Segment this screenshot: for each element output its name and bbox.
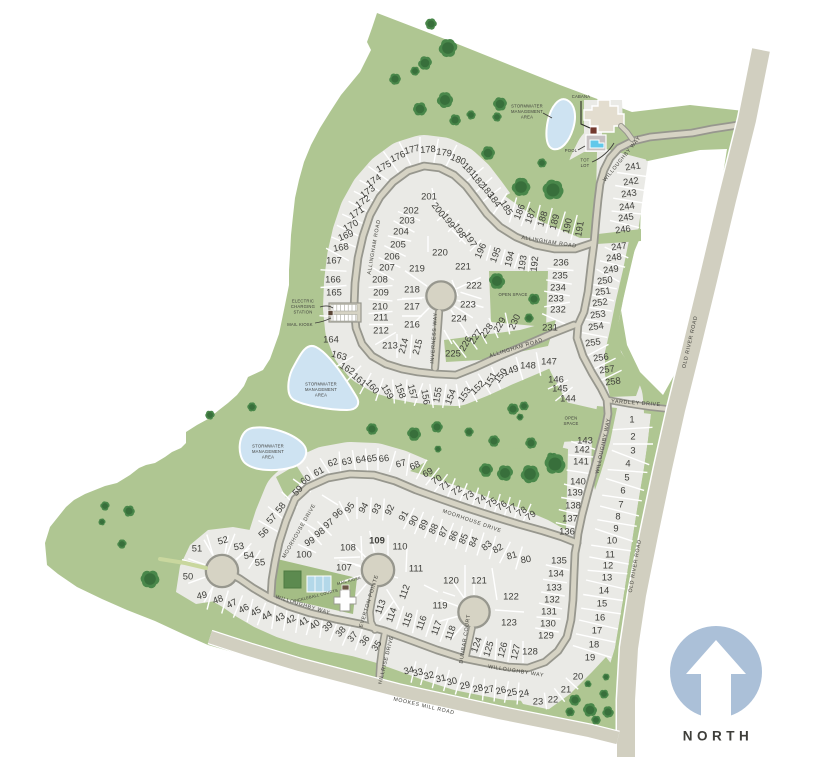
- svg-text:132: 132: [544, 593, 560, 604]
- svg-text:255: 255: [584, 335, 601, 348]
- svg-text:216: 216: [404, 318, 420, 329]
- svg-text:131: 131: [541, 605, 557, 616]
- svg-text:51: 51: [192, 542, 202, 553]
- svg-text:223: 223: [460, 298, 476, 309]
- svg-text:22: 22: [548, 693, 558, 704]
- svg-text:222: 222: [466, 279, 482, 290]
- svg-text:135: 135: [551, 554, 567, 565]
- svg-text:4: 4: [625, 457, 630, 468]
- svg-text:3: 3: [630, 444, 635, 455]
- svg-text:66: 66: [378, 452, 390, 464]
- svg-text:133: 133: [546, 581, 562, 592]
- svg-text:POOL: POOL: [565, 148, 578, 153]
- svg-text:257: 257: [598, 362, 615, 375]
- svg-text:MANAGEMENT: MANAGEMENT: [511, 109, 543, 114]
- svg-text:211: 211: [374, 311, 389, 322]
- svg-text:210: 210: [372, 300, 388, 311]
- svg-text:254: 254: [587, 319, 604, 332]
- svg-text:55: 55: [254, 556, 265, 568]
- svg-text:50: 50: [183, 570, 193, 581]
- svg-text:224: 224: [451, 312, 467, 323]
- svg-text:54: 54: [243, 549, 255, 561]
- svg-text:20: 20: [573, 670, 583, 681]
- svg-text:146: 146: [548, 373, 564, 384]
- svg-text:201: 201: [421, 190, 437, 201]
- svg-text:140: 140: [570, 475, 586, 486]
- svg-text:STORMWATER: STORMWATER: [305, 382, 337, 387]
- svg-text:AREA: AREA: [521, 115, 533, 120]
- svg-text:219: 219: [409, 262, 425, 273]
- svg-text:80: 80: [520, 553, 532, 566]
- svg-text:122: 122: [503, 590, 519, 601]
- svg-text:231: 231: [542, 321, 558, 332]
- svg-text:245: 245: [617, 210, 634, 223]
- svg-text:1: 1: [629, 413, 634, 424]
- svg-text:120: 120: [443, 574, 459, 585]
- svg-text:137: 137: [562, 512, 578, 523]
- svg-text:10: 10: [607, 534, 617, 545]
- svg-text:128: 128: [522, 645, 538, 656]
- svg-text:129: 129: [538, 629, 554, 640]
- svg-text:141: 141: [573, 455, 589, 466]
- svg-text:17: 17: [592, 624, 602, 635]
- svg-text:204: 204: [393, 225, 409, 236]
- svg-text:21: 21: [561, 683, 571, 694]
- svg-text:233: 233: [548, 292, 564, 303]
- svg-text:109: 109: [369, 534, 385, 545]
- svg-text:167: 167: [326, 254, 342, 265]
- svg-text:14: 14: [599, 584, 609, 595]
- svg-text:119: 119: [433, 599, 448, 610]
- svg-text:STORMWATER: STORMWATER: [252, 444, 284, 449]
- svg-text:148: 148: [520, 359, 536, 370]
- svg-text:CHARGING: CHARGING: [291, 304, 315, 309]
- svg-text:TOT: TOT: [581, 157, 590, 162]
- svg-text:209: 209: [373, 286, 389, 297]
- svg-text:MANAGEMENT: MANAGEMENT: [305, 387, 337, 392]
- svg-text:235: 235: [552, 269, 568, 280]
- svg-text:138: 138: [565, 499, 581, 510]
- svg-text:246: 246: [614, 222, 631, 235]
- svg-text:206: 206: [384, 250, 400, 261]
- svg-text:STATION: STATION: [294, 310, 313, 315]
- svg-text:252: 252: [591, 295, 608, 308]
- svg-text:232: 232: [550, 303, 566, 314]
- svg-text:241: 241: [624, 159, 641, 172]
- svg-text:16: 16: [595, 611, 605, 622]
- svg-text:205: 205: [390, 238, 406, 249]
- svg-text:65: 65: [366, 452, 378, 465]
- svg-text:STORMWATER: STORMWATER: [511, 104, 543, 109]
- svg-text:192: 192: [528, 256, 541, 273]
- svg-text:207: 207: [379, 261, 395, 272]
- svg-text:111: 111: [409, 562, 423, 573]
- svg-text:7: 7: [618, 498, 623, 509]
- svg-text:221: 221: [455, 260, 471, 271]
- svg-text:108: 108: [340, 541, 356, 552]
- svg-text:217: 217: [404, 300, 420, 311]
- svg-text:166: 166: [325, 273, 341, 284]
- svg-text:107: 107: [336, 561, 352, 572]
- svg-text:248: 248: [605, 250, 622, 263]
- svg-text:134: 134: [548, 567, 564, 578]
- svg-text:2: 2: [630, 430, 635, 441]
- svg-text:121: 121: [471, 574, 487, 585]
- svg-text:212: 212: [373, 324, 389, 335]
- svg-text:147: 147: [541, 355, 557, 366]
- svg-text:18: 18: [589, 638, 599, 649]
- svg-text:139: 139: [567, 486, 583, 497]
- svg-text:OPEN SPACE: OPEN SPACE: [499, 292, 528, 297]
- svg-text:5: 5: [624, 471, 629, 482]
- svg-text:144: 144: [560, 392, 576, 403]
- svg-text:6: 6: [620, 484, 625, 495]
- svg-text:OPEN: OPEN: [565, 415, 578, 420]
- svg-text:208: 208: [372, 273, 388, 284]
- svg-text:19: 19: [585, 651, 595, 662]
- svg-text:253: 253: [589, 307, 606, 320]
- svg-text:CABANA: CABANA: [572, 94, 590, 99]
- svg-text:NORTH: NORTH: [683, 729, 754, 744]
- svg-text:LOT: LOT: [581, 163, 590, 168]
- svg-text:8: 8: [615, 510, 620, 521]
- svg-text:23: 23: [533, 695, 543, 706]
- svg-text:130: 130: [540, 617, 556, 628]
- svg-text:165: 165: [326, 286, 342, 297]
- svg-text:143: 143: [577, 434, 593, 445]
- svg-text:234: 234: [550, 281, 566, 292]
- svg-text:MANAGEMENT: MANAGEMENT: [252, 449, 284, 454]
- svg-text:15: 15: [597, 597, 607, 608]
- svg-text:236: 236: [553, 256, 569, 267]
- svg-text:203: 203: [399, 214, 415, 225]
- svg-text:218: 218: [404, 283, 420, 294]
- svg-text:164: 164: [323, 333, 339, 344]
- svg-text:ELECTRIC: ELECTRIC: [292, 299, 314, 304]
- svg-text:242: 242: [622, 174, 639, 187]
- svg-text:178: 178: [420, 143, 436, 155]
- svg-text:11: 11: [605, 548, 615, 559]
- svg-text:123: 123: [501, 616, 517, 627]
- svg-text:100: 100: [296, 548, 312, 559]
- svg-text:13: 13: [602, 571, 612, 582]
- svg-text:258: 258: [604, 374, 621, 387]
- svg-text:243: 243: [620, 186, 637, 199]
- svg-text:AREA: AREA: [262, 455, 274, 460]
- svg-text:256: 256: [592, 350, 609, 363]
- svg-text:220: 220: [432, 246, 448, 257]
- svg-text:136: 136: [559, 525, 575, 536]
- svg-text:MAIL KIOSK: MAIL KIOSK: [287, 322, 313, 327]
- svg-text:SPACE: SPACE: [564, 421, 579, 426]
- svg-text:12: 12: [603, 559, 613, 570]
- svg-text:AREA: AREA: [315, 393, 327, 398]
- svg-text:9: 9: [613, 522, 618, 533]
- svg-text:110: 110: [393, 540, 408, 551]
